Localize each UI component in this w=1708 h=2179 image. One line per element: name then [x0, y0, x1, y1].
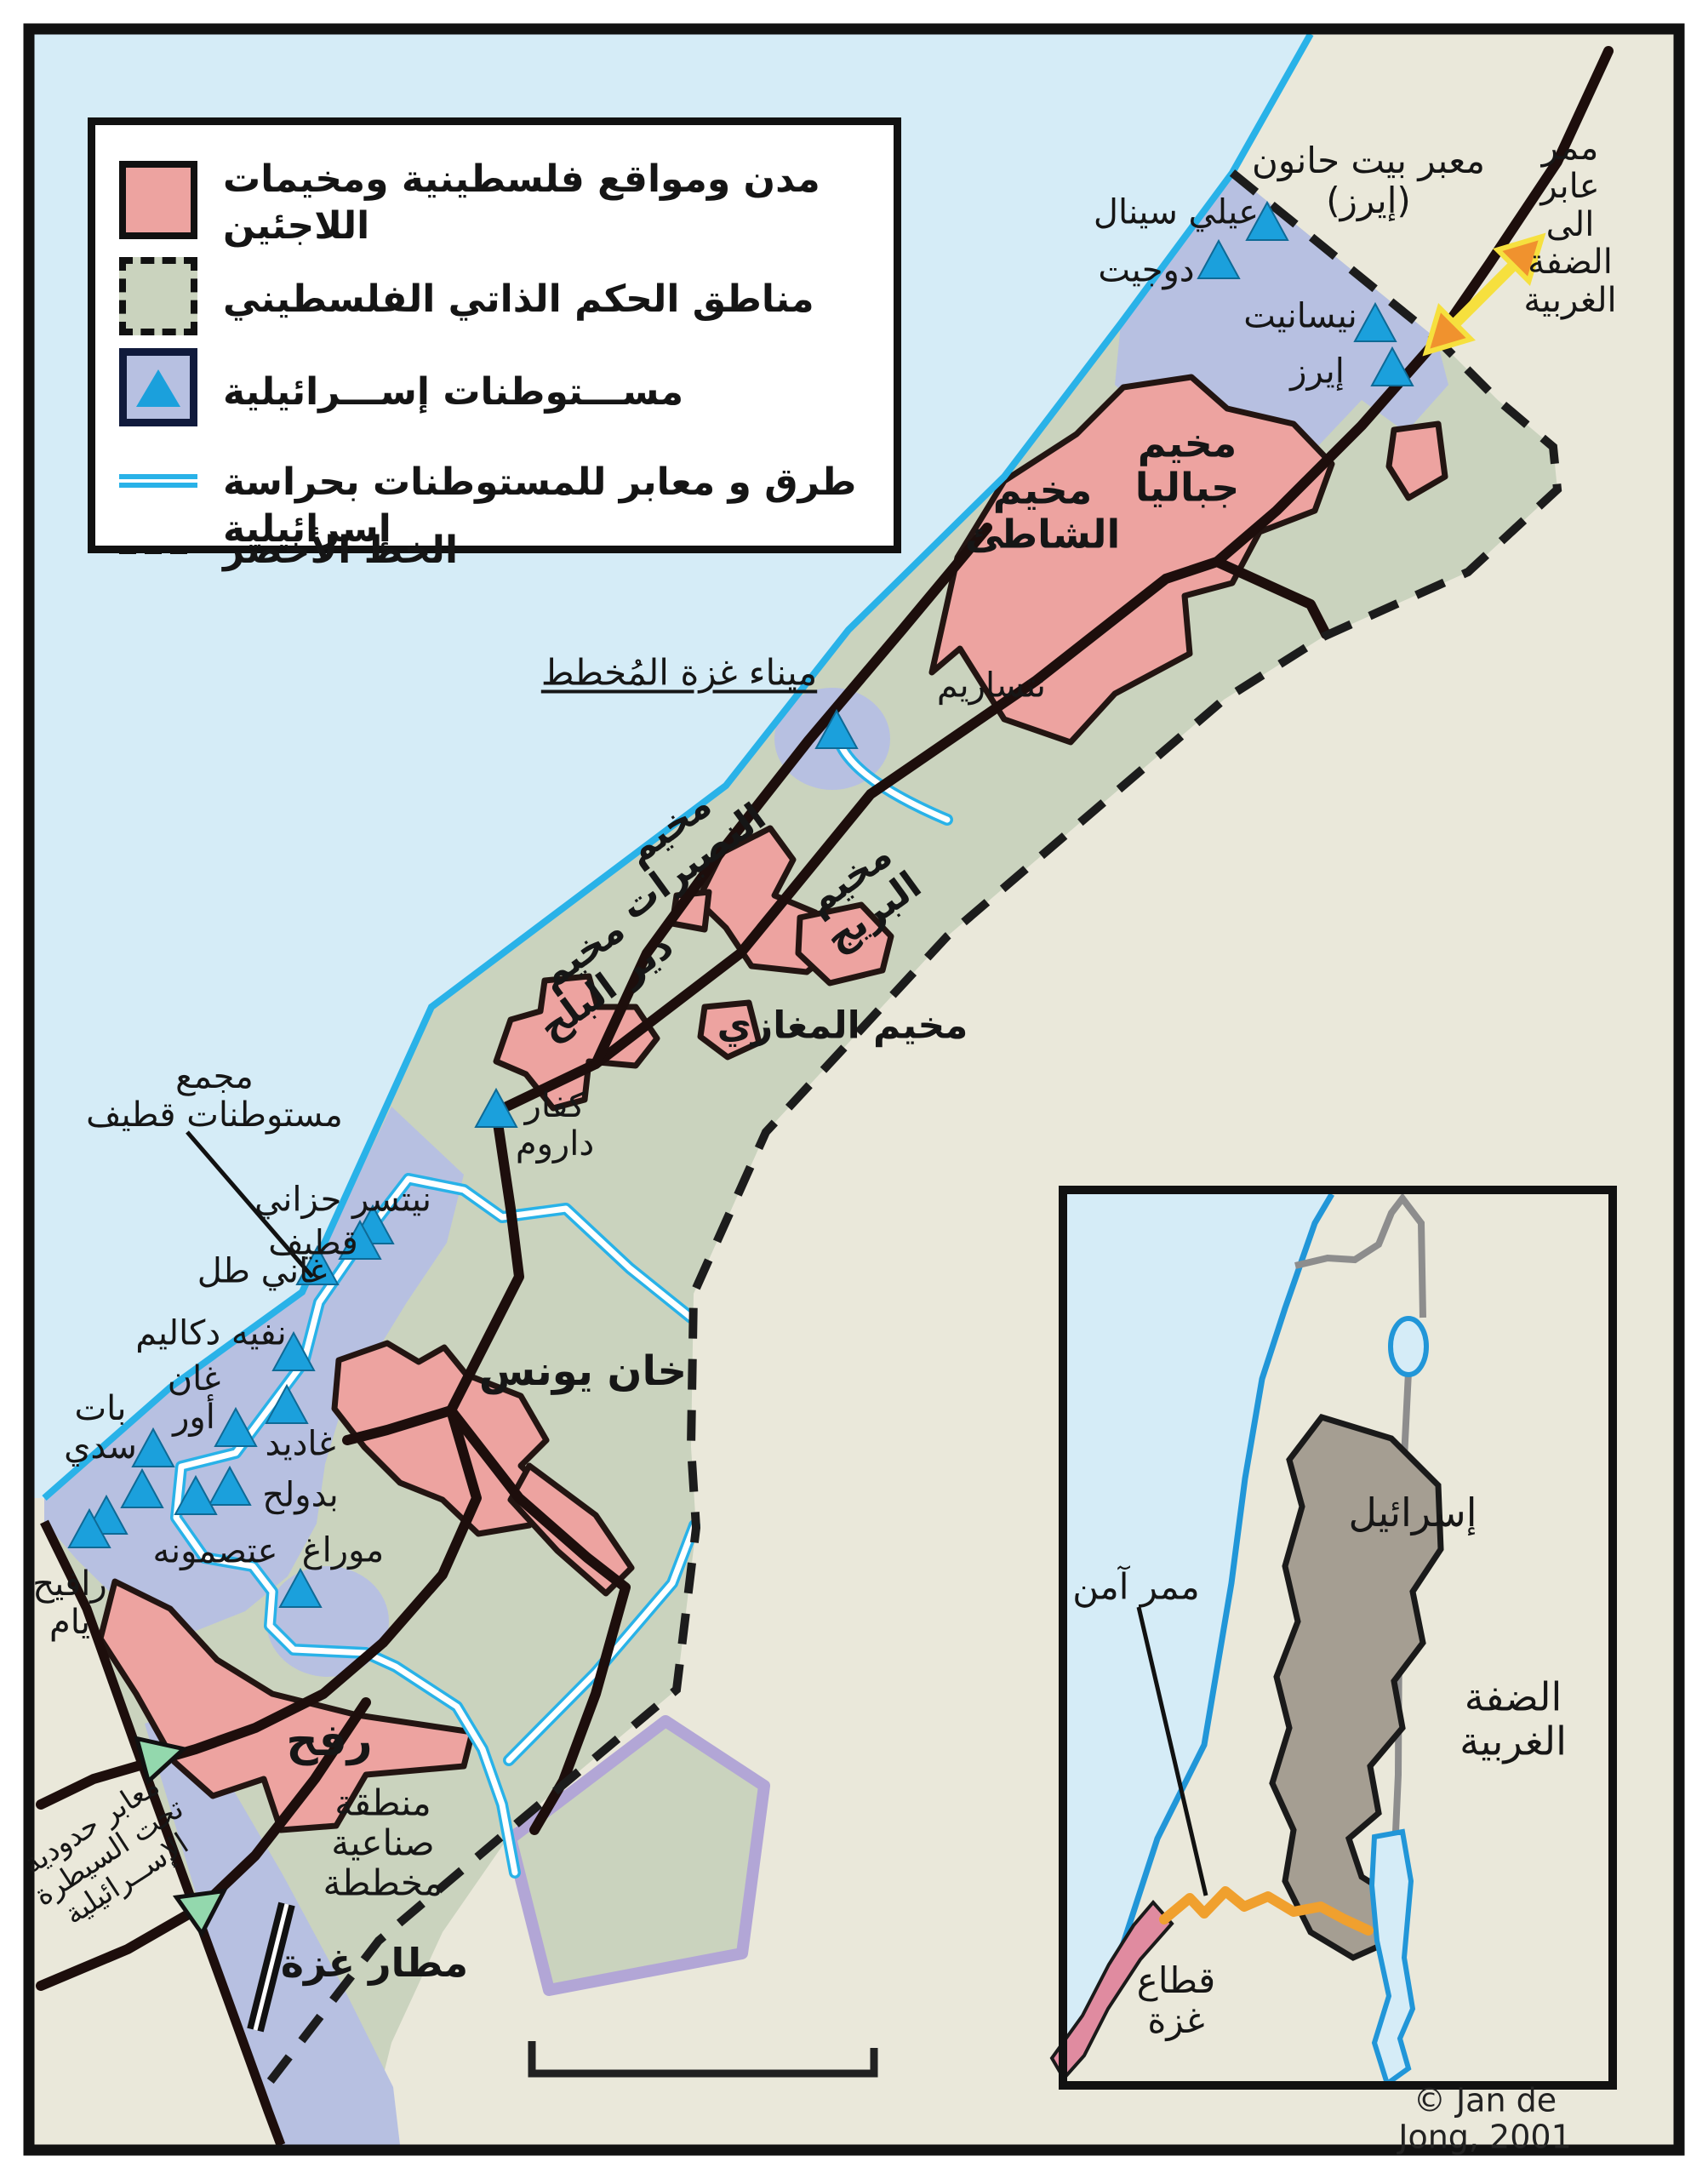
- legend-item-label: الخط الأخضر: [223, 527, 877, 574]
- settlement-swatch-icon: [119, 348, 197, 426]
- legend-item-settlements: مســـتوطنات إســـرائيلية: [95, 348, 894, 433]
- legend-item-self-rule: مناطق الحكم الذاتي الفلسطيني: [95, 257, 894, 342]
- copyright: © Jan de Jong, 2001: [1374, 2082, 1597, 2154]
- legend-item-label: مدن ومواقع فلسطينية ومخيمات اللاجئين: [223, 156, 877, 249]
- dashed-line-swatch-icon: [119, 546, 187, 554]
- legend-item-label: مناطق الحكم الذاتي الفلسطيني: [223, 276, 877, 323]
- legend-box: مدن ومواقع فلسطينية ومخيمات اللاجئين منا…: [88, 117, 901, 553]
- dashed-green-area-swatch-icon: [119, 257, 197, 335]
- double-line-road-swatch-icon: [119, 474, 197, 488]
- inset-map: [1052, 1190, 1613, 2085]
- inset-sea-of-galilee: [1391, 1318, 1426, 1375]
- legend-item-palestinian-cities: مدن ومواقع فلسطينية ومخيمات اللاجئين: [95, 151, 894, 244]
- legend-item-green-line: الخط الأخضر: [95, 532, 894, 583]
- legend-item-label: مســـتوطنات إســـرائيلية: [223, 369, 877, 415]
- legend-item-guarded-roads: طرق و معابر للمستوطنات بحراسة إسرائيلية: [95, 459, 894, 518]
- pink-area-swatch-icon: [119, 161, 197, 239]
- map-page: مدن ومواقع فلسطينية ومخيمات اللاجئين منا…: [0, 0, 1708, 2179]
- triangle-icon: [136, 369, 180, 407]
